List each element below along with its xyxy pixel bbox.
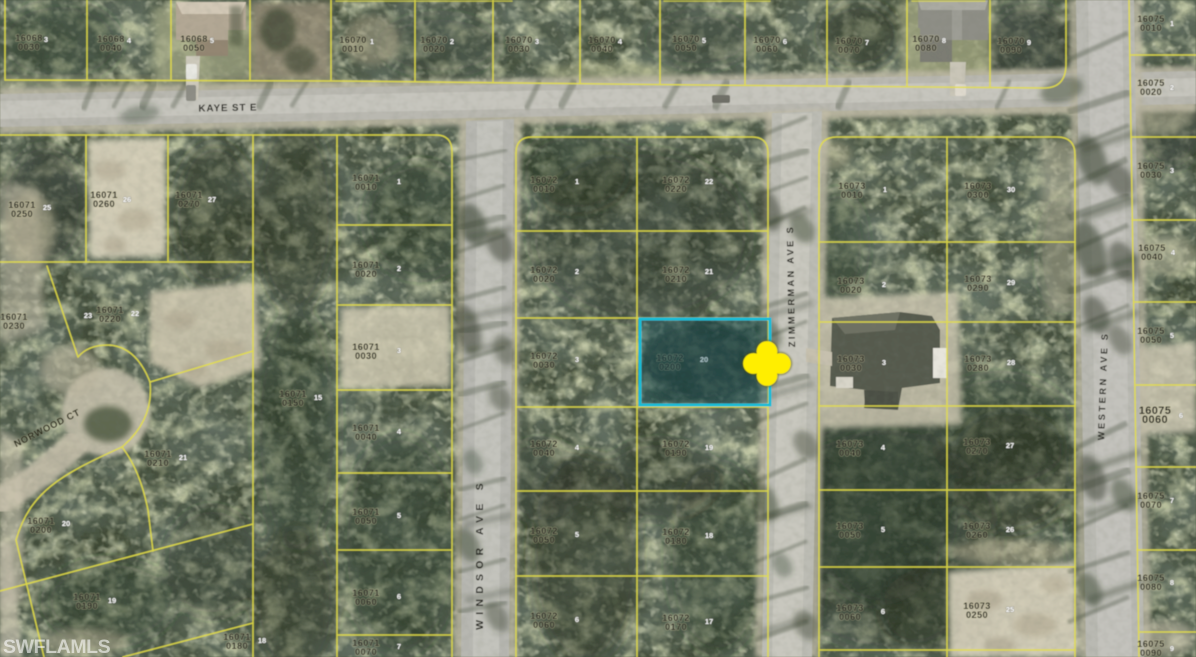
svg-text:2: 2: [882, 280, 886, 289]
svg-text:0180: 0180: [665, 536, 687, 546]
svg-text:0070: 0070: [355, 647, 377, 657]
svg-text:5: 5: [1170, 331, 1174, 340]
svg-text:0210: 0210: [147, 458, 169, 468]
svg-text:6: 6: [575, 615, 579, 624]
svg-text:0210: 0210: [665, 274, 687, 284]
svg-text:0010: 0010: [1140, 23, 1162, 33]
svg-text:6: 6: [397, 592, 401, 601]
svg-text:0290: 0290: [967, 283, 989, 293]
svg-text:0300: 0300: [967, 190, 989, 200]
svg-text:8: 8: [1170, 578, 1174, 587]
svg-text:27: 27: [208, 195, 216, 204]
svg-text:5: 5: [881, 525, 885, 534]
svg-text:9: 9: [1027, 38, 1031, 47]
svg-text:0270: 0270: [178, 199, 200, 209]
svg-text:19: 19: [705, 443, 713, 452]
svg-text:SWFLAMLS: SWFLAMLS: [3, 636, 111, 657]
svg-text:3: 3: [397, 346, 401, 355]
svg-text:18: 18: [705, 531, 713, 540]
svg-text:0050: 0050: [675, 43, 697, 53]
svg-text:0010: 0010: [342, 44, 364, 54]
svg-text:0040: 0040: [839, 448, 861, 458]
svg-text:0150: 0150: [282, 398, 304, 408]
svg-text:0060: 0060: [839, 612, 861, 622]
svg-text:0040: 0040: [355, 432, 377, 442]
svg-text:0030: 0030: [1140, 170, 1162, 180]
svg-text:0040: 0040: [533, 448, 555, 458]
svg-text:1: 1: [397, 177, 401, 186]
svg-text:0190: 0190: [76, 601, 98, 611]
svg-text:1: 1: [575, 177, 579, 186]
svg-text:0070: 0070: [1140, 500, 1162, 510]
svg-text:0060: 0060: [756, 44, 778, 54]
svg-text:0220: 0220: [99, 314, 121, 324]
svg-text:18: 18: [258, 636, 266, 645]
svg-text:30: 30: [1007, 185, 1015, 194]
svg-text:ZIMMERMAN AVE S: ZIMMERMAN AVE S: [785, 225, 797, 347]
svg-text:29: 29: [1007, 278, 1015, 287]
svg-text:0200: 0200: [30, 525, 52, 535]
svg-text:23: 23: [84, 311, 92, 320]
svg-text:0250: 0250: [11, 209, 33, 219]
svg-text:19: 19: [108, 596, 116, 605]
svg-text:3: 3: [882, 358, 886, 367]
svg-text:17: 17: [705, 617, 713, 626]
svg-text:0010: 0010: [355, 182, 377, 192]
svg-text:26: 26: [123, 195, 131, 204]
svg-text:0020: 0020: [533, 274, 555, 284]
svg-text:0220: 0220: [665, 184, 687, 194]
svg-text:0060: 0060: [1142, 414, 1168, 426]
svg-text:0270: 0270: [966, 446, 988, 456]
svg-text:KAYE ST E: KAYE ST E: [198, 102, 257, 114]
svg-text:3: 3: [535, 37, 539, 46]
svg-text:2: 2: [1170, 83, 1174, 92]
svg-text:0050: 0050: [355, 516, 377, 526]
svg-text:0180: 0180: [226, 641, 248, 651]
svg-text:0030: 0030: [18, 42, 40, 52]
svg-text:0190: 0190: [665, 448, 687, 458]
svg-text:3: 3: [44, 35, 48, 44]
svg-text:0010: 0010: [841, 190, 863, 200]
svg-text:3: 3: [1170, 166, 1174, 175]
svg-text:0080: 0080: [1140, 582, 1162, 592]
svg-text:0050: 0050: [1140, 335, 1162, 345]
svg-text:0060: 0060: [533, 620, 555, 630]
svg-text:0090: 0090: [1140, 648, 1162, 657]
svg-text:22: 22: [705, 177, 713, 186]
svg-text:22: 22: [131, 309, 139, 318]
svg-text:0040: 0040: [1141, 252, 1163, 262]
svg-text:7: 7: [865, 38, 869, 47]
svg-text:0280: 0280: [967, 363, 989, 373]
svg-text:0050: 0050: [183, 43, 205, 53]
svg-text:0170: 0170: [665, 622, 687, 632]
svg-text:0040: 0040: [591, 44, 613, 54]
svg-text:0230: 0230: [3, 321, 25, 331]
svg-text:0090: 0090: [1000, 45, 1022, 55]
svg-text:0020: 0020: [840, 285, 862, 295]
svg-text:21: 21: [179, 453, 187, 462]
svg-text:25: 25: [43, 203, 51, 212]
svg-text:5: 5: [397, 511, 401, 520]
svg-text:0010: 0010: [533, 184, 555, 194]
svg-text:2: 2: [575, 267, 579, 276]
svg-text:8: 8: [942, 36, 946, 45]
svg-text:21: 21: [705, 267, 713, 276]
svg-text:0070: 0070: [838, 45, 860, 55]
svg-text:5: 5: [575, 530, 579, 539]
svg-text:9: 9: [1170, 644, 1174, 653]
svg-text:2: 2: [397, 264, 401, 273]
svg-text:0020: 0020: [423, 44, 445, 54]
svg-text:6: 6: [783, 37, 787, 46]
svg-text:1: 1: [370, 37, 374, 46]
svg-text:0260: 0260: [93, 199, 115, 209]
svg-text:0060: 0060: [355, 597, 377, 607]
svg-text:0030: 0030: [533, 360, 555, 370]
svg-text:0040: 0040: [100, 43, 122, 53]
svg-text:0260: 0260: [966, 530, 988, 540]
svg-text:27: 27: [1006, 441, 1014, 450]
svg-text:15: 15: [314, 393, 322, 402]
svg-text:7: 7: [397, 642, 401, 651]
svg-text:26: 26: [1006, 525, 1014, 534]
svg-text:1: 1: [1170, 19, 1174, 28]
svg-text:7: 7: [1170, 496, 1174, 505]
svg-text:5: 5: [210, 36, 214, 45]
svg-text:0080: 0080: [915, 43, 937, 53]
svg-text:0050: 0050: [839, 530, 861, 540]
svg-text:0030: 0030: [840, 363, 862, 373]
svg-text:WINDSOR AVE S: WINDSOR AVE S: [474, 478, 486, 630]
svg-text:2: 2: [450, 37, 454, 46]
svg-text:0020: 0020: [1140, 87, 1162, 97]
svg-text:5: 5: [702, 36, 706, 45]
svg-text:25: 25: [1006, 605, 1014, 614]
svg-text:1: 1: [883, 185, 887, 194]
svg-text:28: 28: [1007, 358, 1015, 367]
svg-text:0030: 0030: [355, 351, 377, 361]
svg-text:0050: 0050: [533, 535, 555, 545]
svg-text:6: 6: [1179, 411, 1183, 420]
svg-text:3: 3: [575, 355, 579, 364]
svg-text:6: 6: [881, 607, 885, 616]
svg-text:0250: 0250: [966, 610, 988, 620]
svg-text:20: 20: [62, 519, 70, 528]
svg-text:0030: 0030: [508, 44, 530, 54]
svg-text:0020: 0020: [355, 269, 377, 279]
